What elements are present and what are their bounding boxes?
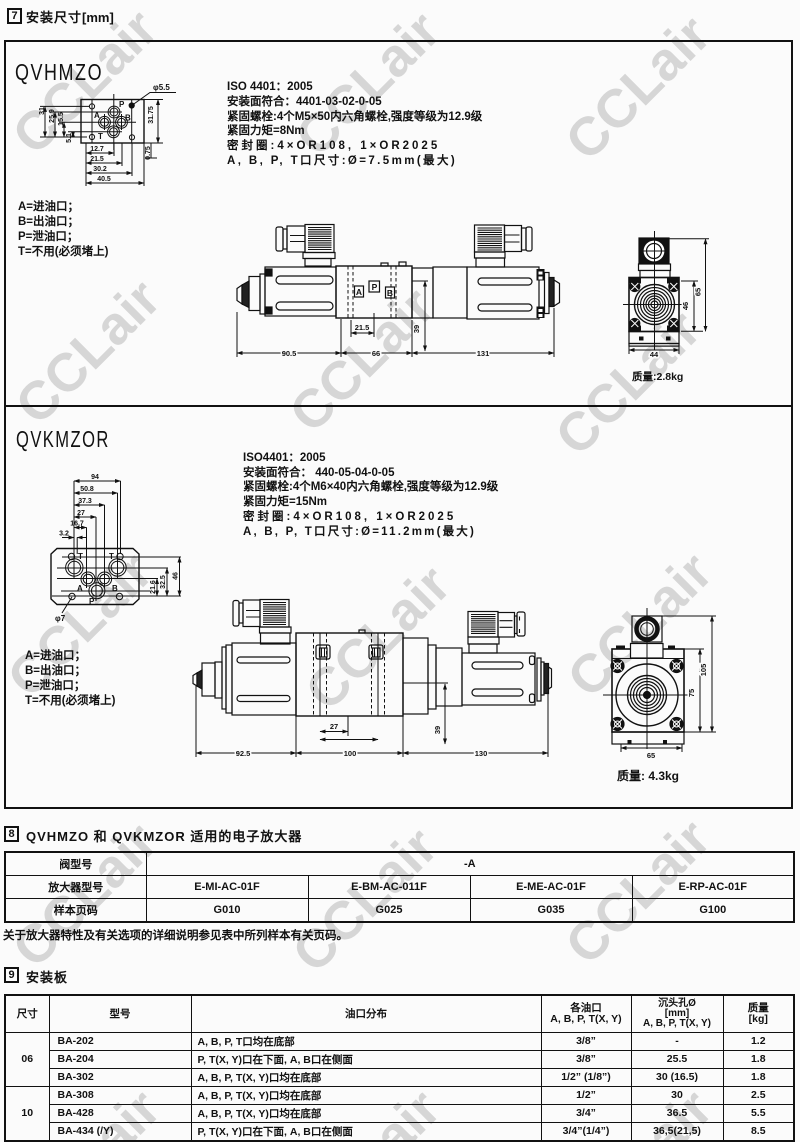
svg-text:T: T [109, 552, 114, 561]
svg-text:P: P [89, 597, 95, 606]
svg-text:T: T [98, 132, 103, 141]
svg-text:37.3: 37.3 [78, 498, 92, 505]
svg-text:21.5: 21.5 [355, 323, 370, 332]
svg-text:40.5: 40.5 [97, 176, 111, 183]
svg-text:25.9: 25.9 [49, 109, 56, 123]
svg-text:94: 94 [91, 474, 99, 481]
svg-text:12.7: 12.7 [90, 146, 104, 153]
svg-text:27: 27 [77, 510, 85, 517]
svg-text:B: B [112, 584, 118, 593]
svg-text:100: 100 [344, 749, 357, 758]
svg-text:105: 105 [699, 664, 708, 677]
svg-text:66: 66 [372, 349, 380, 358]
svg-text:φ5.5: φ5.5 [153, 83, 170, 92]
svg-text:15.5: 15.5 [58, 112, 65, 126]
svg-text:32.5: 32.5 [160, 575, 167, 589]
svg-text:3.2: 3.2 [59, 531, 69, 538]
svg-text:130: 130 [475, 749, 488, 758]
svg-text:φ7: φ7 [55, 614, 66, 623]
svg-text:131: 131 [477, 349, 490, 358]
svg-text:A: A [77, 584, 83, 593]
svg-text:65: 65 [647, 751, 655, 760]
svg-text:27: 27 [330, 722, 338, 731]
svg-text:44: 44 [650, 350, 659, 359]
svg-text:92.5: 92.5 [236, 749, 251, 758]
svg-text:P: P [119, 100, 125, 109]
svg-text:16.7: 16.7 [70, 521, 84, 528]
svg-text:B: B [125, 114, 131, 123]
svg-text:90.5: 90.5 [282, 349, 297, 358]
svg-text:B: B [387, 288, 393, 298]
svg-text:T: T [78, 552, 83, 561]
svg-text:39: 39 [412, 325, 421, 333]
svg-text:30.2: 30.2 [93, 166, 107, 173]
svg-text:31: 31 [39, 107, 46, 115]
svg-text:0.75: 0.75 [145, 146, 152, 160]
svg-text:21.6: 21.6 [150, 580, 157, 594]
svg-text:P: P [372, 282, 378, 292]
svg-text:21.5: 21.5 [90, 156, 104, 163]
svg-text:65: 65 [694, 288, 703, 296]
svg-text:50.8: 50.8 [80, 486, 94, 493]
svg-text:A: A [356, 287, 362, 297]
svg-text:46: 46 [681, 302, 690, 310]
svg-text:39: 39 [433, 726, 442, 734]
svg-text:75: 75 [687, 689, 696, 697]
svg-text:46: 46 [173, 572, 180, 580]
svg-text:5.1: 5.1 [66, 133, 73, 143]
svg-text:31.75: 31.75 [148, 106, 155, 124]
